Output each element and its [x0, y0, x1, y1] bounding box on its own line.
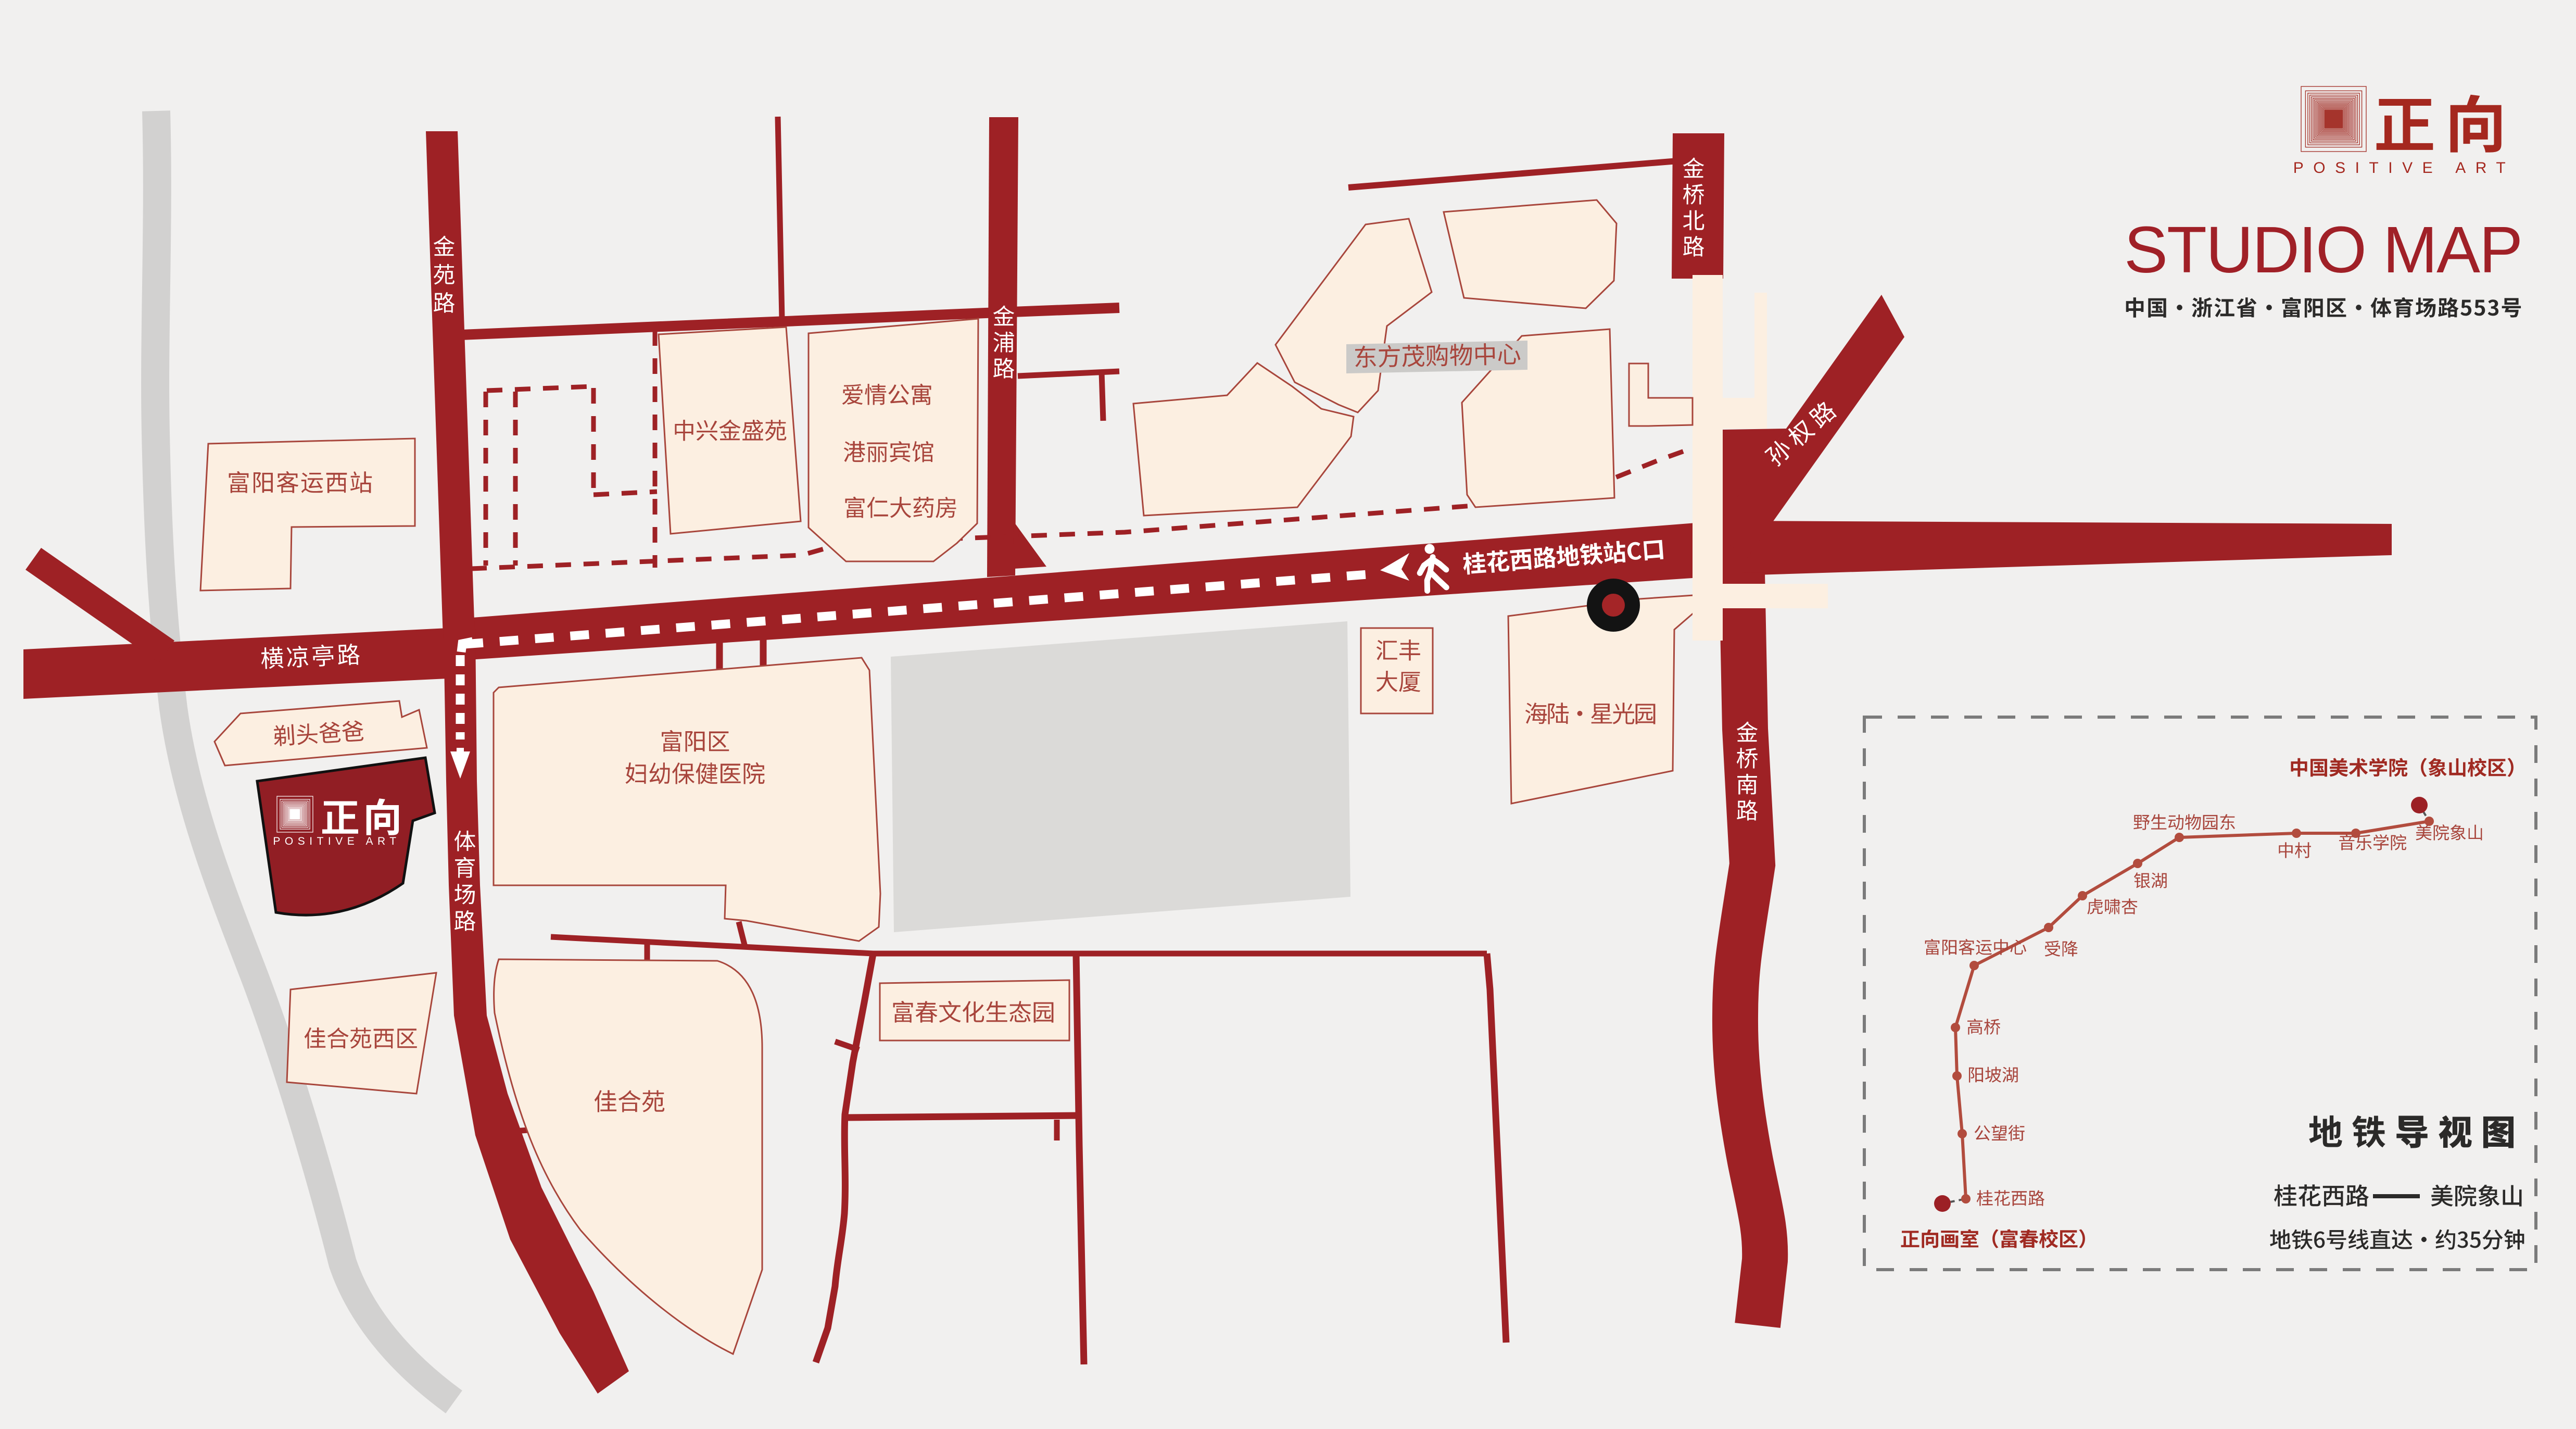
svg-text:POSITIVE ART: POSITIVE ART [2293, 159, 2516, 177]
svg-text:POSITIVE ART: POSITIVE ART [273, 835, 400, 847]
svg-text:STUDIO MAP: STUDIO MAP [2124, 213, 2522, 286]
